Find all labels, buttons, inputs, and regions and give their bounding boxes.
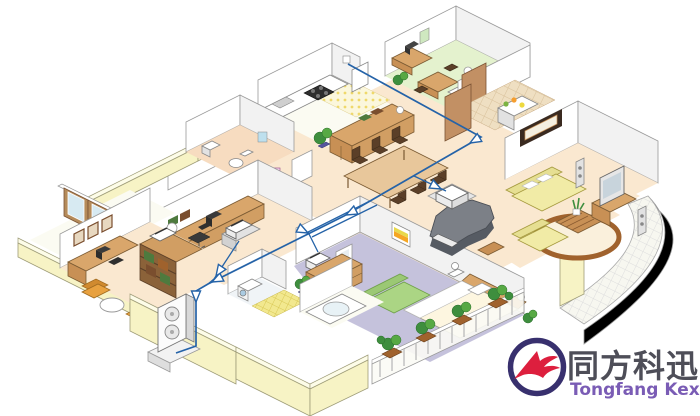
round-table — [100, 298, 124, 312]
home-network-illustration: 同方科迅 Tongfang Kexun — [0, 0, 700, 416]
bedside-lamp — [452, 263, 459, 270]
fruit — [503, 101, 508, 106]
table-lamp — [397, 107, 404, 114]
wall-plate — [343, 56, 350, 63]
logo: 同方科迅 Tongfang Kexun — [511, 341, 700, 401]
speaker — [638, 206, 646, 236]
mirror — [258, 132, 267, 142]
speaker — [576, 158, 584, 188]
logo-text-en: Tongfang Kexun — [570, 380, 700, 400]
isometric-apartment-svg: 同方科迅 Tongfang Kexun — [0, 0, 700, 416]
toilet — [229, 159, 243, 168]
